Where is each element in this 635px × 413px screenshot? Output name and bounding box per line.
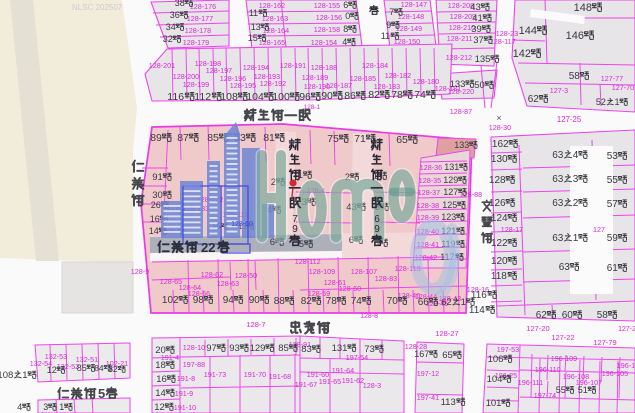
- svg-text:4: 4: [17, 402, 22, 412]
- svg-text:87: 87: [177, 132, 189, 144]
- svg-text:63: 63: [552, 150, 564, 161]
- svg-text:20: 20: [155, 345, 166, 356]
- svg-text:128-147: 128-147: [401, 0, 427, 9]
- svg-text:63: 63: [552, 233, 564, 244]
- svg-text:128-212: 128-212: [446, 53, 472, 62]
- svg-text:104: 104: [487, 374, 503, 385]
- svg-text:100: 100: [272, 91, 290, 103]
- svg-text:8: 8: [343, 24, 348, 34]
- svg-text:133: 133: [450, 79, 466, 90]
- svg-text:120: 120: [491, 256, 508, 267]
- svg-text:55: 55: [607, 175, 619, 186]
- svg-text:191-70: 191-70: [244, 370, 266, 379]
- svg-text:144: 144: [519, 25, 537, 37]
- svg-text:148: 148: [574, 2, 592, 14]
- svg-text:128-189: 128-189: [302, 73, 328, 82]
- svg-text:32: 32: [163, 34, 173, 44]
- svg-text:0: 0: [345, 11, 350, 21]
- svg-text:96: 96: [299, 91, 311, 103]
- svg-text:108: 108: [0, 370, 13, 381]
- svg-text:39: 39: [471, 24, 482, 35]
- svg-text:116: 116: [167, 91, 184, 103]
- svg-text:128-27: 128-27: [435, 329, 458, 338]
- svg-text:6: 6: [343, 0, 348, 10]
- svg-text:3: 3: [43, 402, 48, 412]
- svg-text:128-149: 128-149: [396, 24, 422, 33]
- svg-text:128-178: 128-178: [185, 26, 211, 35]
- svg-text:128-62: 128-62: [201, 270, 223, 279]
- svg-text:81: 81: [263, 132, 275, 144]
- svg-text:128-61: 128-61: [324, 278, 346, 287]
- svg-text:142: 142: [513, 48, 531, 60]
- svg-text:127-79: 127-79: [593, 338, 616, 347]
- svg-text:74: 74: [414, 89, 426, 101]
- svg-text:58: 58: [569, 71, 581, 82]
- svg-text:128-195: 128-195: [230, 81, 256, 90]
- svg-text:112: 112: [194, 91, 211, 103]
- svg-text:191-62: 191-62: [342, 376, 364, 385]
- svg-text:196-111: 196-111: [518, 378, 543, 387]
- svg-text:167: 167: [414, 349, 429, 359]
- svg-text:197-41: 197-41: [417, 393, 439, 402]
- svg-text:128-36: 128-36: [420, 163, 442, 172]
- svg-text:196-10: 196-10: [617, 361, 635, 370]
- svg-text:128-63: 128-63: [217, 279, 239, 288]
- svg-text:128-199: 128-199: [183, 80, 209, 89]
- svg-text:128-7: 128-7: [246, 320, 265, 329]
- svg-text:127-20: 127-20: [526, 324, 549, 333]
- svg-text:4: 4: [573, 150, 579, 161]
- svg-text:128-38: 128-38: [417, 201, 439, 210]
- svg-text:128-87: 128-87: [450, 107, 472, 116]
- svg-text:191-65: 191-65: [319, 377, 341, 386]
- svg-text:127-3: 127-3: [550, 86, 568, 95]
- svg-text:128-163: 128-163: [262, 14, 288, 23]
- svg-text:128-8: 128-8: [360, 313, 378, 320]
- svg-text:43: 43: [470, 2, 481, 13]
- svg-text:128-191: 128-191: [280, 61, 306, 70]
- svg-text:4: 4: [342, 37, 347, 47]
- svg-text:58: 58: [597, 310, 609, 321]
- svg-text:1: 1: [573, 233, 579, 244]
- svg-text:2: 2: [573, 198, 579, 209]
- svg-text:22: 22: [201, 240, 215, 255]
- svg-text:118: 118: [491, 271, 507, 282]
- svg-text:78: 78: [326, 296, 338, 307]
- svg-text:191-67: 191-67: [295, 380, 317, 389]
- svg-text:197-74: 197-74: [534, 391, 556, 400]
- svg-text:63: 63: [552, 174, 564, 185]
- svg-text:127-2: 127-2: [618, 326, 635, 333]
- svg-text:41: 41: [472, 13, 483, 24]
- svg-text:191-68: 191-68: [269, 372, 291, 381]
- svg-text:71: 71: [354, 133, 366, 145]
- svg-text:12: 12: [154, 402, 165, 413]
- svg-text:53: 53: [607, 151, 619, 162]
- svg-text:191-8: 191-8: [177, 374, 195, 383]
- svg-text:73: 73: [364, 344, 375, 355]
- svg-text:113: 113: [441, 397, 456, 408]
- svg-text:11: 11: [381, 31, 390, 41]
- svg-text:128-60: 128-60: [231, 221, 253, 228]
- svg-text:75: 75: [327, 133, 339, 145]
- svg-text:128-211: 128-211: [447, 34, 473, 43]
- svg-text:116: 116: [471, 290, 487, 301]
- svg-text:128-154: 128-154: [311, 38, 337, 47]
- svg-text:89: 89: [150, 132, 162, 144]
- svg-text:55: 55: [556, 385, 566, 395]
- svg-text:65: 65: [442, 350, 453, 361]
- svg-text:114: 114: [469, 305, 485, 316]
- svg-text:106: 106: [488, 354, 504, 365]
- svg-text:NLSC 202507: NLSC 202507: [72, 3, 123, 12]
- svg-text:14: 14: [149, 226, 159, 236]
- svg-text:128-37: 128-37: [418, 188, 440, 197]
- svg-text:5: 5: [98, 386, 105, 401]
- svg-text:191-10: 191-10: [174, 403, 196, 412]
- svg-text:127-70: 127-70: [612, 83, 634, 92]
- svg-text:9: 9: [386, 20, 391, 30]
- svg-text:128-117: 128-117: [490, 37, 516, 46]
- svg-text:128-3: 128-3: [363, 381, 381, 390]
- svg-text:90: 90: [249, 295, 261, 306]
- svg-text:26: 26: [151, 200, 161, 210]
- svg-text:3: 3: [573, 174, 579, 185]
- svg-text:123: 123: [441, 212, 456, 222]
- svg-text:62: 62: [536, 310, 548, 321]
- svg-text:50: 50: [474, 80, 485, 91]
- svg-text:101: 101: [486, 398, 502, 409]
- svg-text:1: 1: [461, 297, 466, 308]
- svg-text:131: 131: [332, 343, 348, 354]
- svg-text:85: 85: [207, 132, 219, 144]
- svg-text:128-187: 128-187: [326, 81, 352, 90]
- svg-text:128-192: 128-192: [260, 79, 286, 88]
- svg-text:128-176: 128-176: [190, 2, 216, 11]
- svg-text:102: 102: [162, 295, 179, 306]
- svg-text:×: ×: [496, 113, 501, 123]
- svg-text:7: 7: [389, 7, 394, 17]
- svg-text:133: 133: [454, 140, 469, 150]
- svg-text:191-9: 191-9: [175, 389, 193, 398]
- svg-text:37: 37: [473, 35, 484, 46]
- svg-text:124: 124: [491, 213, 508, 224]
- svg-text:127-77: 127-77: [601, 74, 623, 83]
- svg-text:104: 104: [246, 91, 264, 103]
- svg-text:131: 131: [444, 162, 459, 172]
- svg-text:38: 38: [175, 0, 185, 8]
- svg-text:146: 146: [566, 30, 584, 42]
- svg-text:197-12: 197-12: [417, 369, 439, 378]
- svg-text:82: 82: [368, 89, 380, 101]
- svg-text:66: 66: [418, 297, 430, 308]
- svg-text:128-162: 128-162: [259, 1, 285, 10]
- svg-text:191-73: 191-73: [204, 370, 226, 379]
- svg-text:83: 83: [301, 344, 312, 355]
- svg-text:130: 130: [491, 154, 508, 165]
- svg-text:12: 12: [47, 365, 57, 375]
- svg-text:51: 51: [578, 385, 588, 395]
- svg-text:57: 57: [607, 199, 619, 210]
- svg-text:93: 93: [229, 343, 240, 354]
- svg-text:197-53: 197-53: [497, 345, 519, 354]
- svg-text:128-10: 128-10: [183, 343, 205, 352]
- svg-text:128-155: 128-155: [314, 1, 340, 10]
- svg-text:128-107: 128-107: [351, 267, 377, 276]
- svg-text:16: 16: [156, 374, 167, 385]
- svg-text:128-30: 128-30: [489, 123, 511, 132]
- svg-text:98: 98: [193, 295, 205, 306]
- svg-text:94: 94: [223, 295, 235, 306]
- svg-text:196-109: 196-109: [551, 354, 577, 363]
- svg-text:6: 6: [270, 237, 275, 248]
- svg-text:128-9: 128-9: [131, 267, 149, 276]
- svg-text:84: 84: [94, 363, 104, 373]
- svg-text:128-184: 128-184: [362, 61, 388, 70]
- svg-text:97: 97: [206, 343, 217, 354]
- svg-text:34: 34: [166, 22, 176, 32]
- svg-text:127: 127: [593, 225, 605, 234]
- svg-text:108: 108: [220, 91, 238, 103]
- svg-text:128-194: 128-194: [243, 63, 269, 72]
- svg-text:1: 1: [59, 402, 64, 412]
- svg-text:61: 61: [607, 263, 619, 274]
- svg-text:62: 62: [528, 94, 540, 105]
- svg-text:74: 74: [351, 296, 363, 307]
- svg-text:86: 86: [344, 90, 356, 102]
- svg-text:36: 36: [170, 10, 180, 20]
- svg-text:197-88: 197-88: [183, 360, 205, 369]
- svg-text:78: 78: [391, 89, 403, 101]
- svg-text:128-109: 128-109: [309, 267, 335, 276]
- svg-text:128: 128: [489, 175, 506, 186]
- svg-text:135: 135: [475, 54, 491, 65]
- svg-text:18: 18: [155, 360, 166, 371]
- svg-text:196-110: 196-110: [535, 365, 561, 374]
- svg-text:128-185: 128-185: [350, 74, 376, 83]
- svg-text:128-112: 128-112: [295, 257, 321, 266]
- svg-text:128-179: 128-179: [183, 38, 209, 47]
- svg-text:82: 82: [301, 296, 313, 307]
- svg-text:128-83: 128-83: [375, 274, 397, 283]
- svg-text:191-64: 191-64: [332, 366, 354, 375]
- svg-text:1: 1: [615, 97, 620, 107]
- svg-text:125: 125: [442, 200, 457, 210]
- svg-text:63: 63: [552, 198, 564, 209]
- svg-text:14: 14: [155, 388, 166, 399]
- svg-text:91: 91: [152, 172, 163, 183]
- svg-text:126: 126: [489, 198, 506, 209]
- svg-text:196-105: 196-105: [602, 369, 628, 378]
- svg-text:52: 52: [596, 97, 606, 107]
- svg-text:128-35: 128-35: [419, 176, 441, 185]
- svg-text:16: 16: [150, 214, 160, 224]
- svg-text:85: 85: [278, 343, 289, 354]
- svg-text:60: 60: [562, 310, 574, 321]
- svg-text:127: 127: [443, 187, 458, 197]
- svg-text:128-156: 128-156: [316, 13, 342, 22]
- svg-text:127-25: 127-25: [557, 115, 582, 124]
- svg-text:88: 88: [274, 296, 286, 307]
- svg-text:128-188: 128-188: [311, 63, 337, 72]
- svg-text:129: 129: [250, 343, 266, 354]
- svg-text:1: 1: [22, 370, 27, 381]
- svg-text:15: 15: [248, 33, 258, 43]
- svg-text:90: 90: [321, 90, 333, 102]
- svg-text:162: 162: [492, 139, 509, 150]
- svg-text:128-177: 128-177: [187, 14, 213, 23]
- svg-text:70: 70: [387, 296, 399, 307]
- svg-text:59: 59: [607, 233, 619, 244]
- svg-text:65: 65: [396, 134, 408, 146]
- svg-text:11: 11: [249, 8, 258, 18]
- svg-text:128-150: 128-150: [394, 37, 420, 46]
- svg-text:85: 85: [77, 363, 87, 373]
- svg-text:9: 9: [292, 224, 298, 235]
- svg-text:129: 129: [443, 175, 458, 185]
- svg-text:13: 13: [251, 22, 261, 32]
- svg-text:127-22: 127-22: [551, 333, 574, 342]
- svg-text:82: 82: [108, 364, 118, 374]
- svg-text:9: 9: [374, 224, 380, 235]
- svg-text:128-17: 128-17: [501, 225, 523, 234]
- svg-text:122: 122: [491, 238, 508, 249]
- svg-text:128-182: 128-182: [385, 71, 411, 80]
- svg-text:63: 63: [559, 262, 571, 273]
- svg-text:128-158: 128-158: [314, 25, 340, 34]
- svg-text:128-201: 128-201: [149, 61, 175, 70]
